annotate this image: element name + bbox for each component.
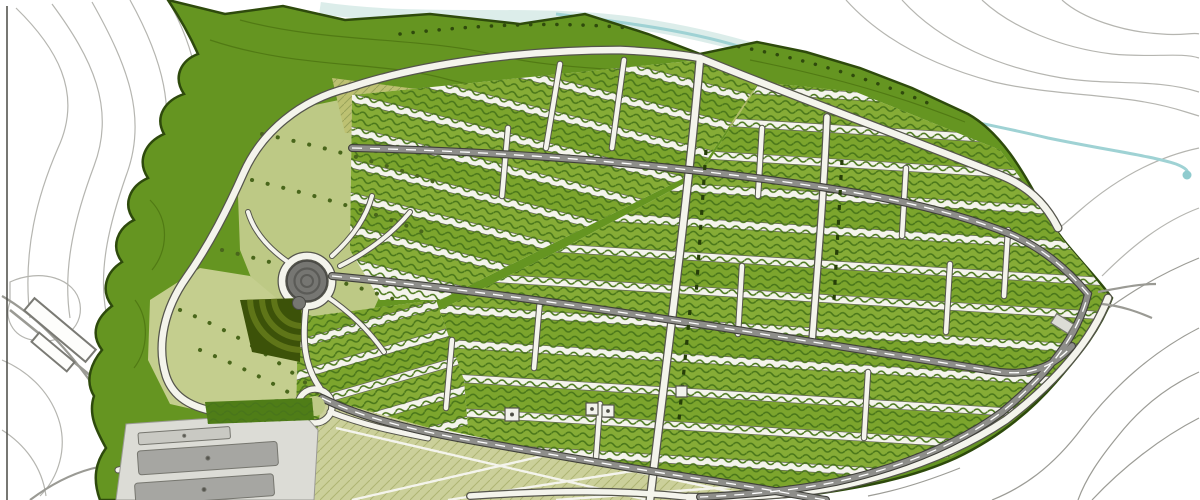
plaza-south-nub (293, 297, 306, 310)
site-plan-svg (0, 0, 1200, 500)
building-roof-dot (202, 487, 206, 491)
entrance-hedge-rows (205, 398, 314, 424)
pavilion-dot (511, 413, 514, 416)
building-roof-dot (206, 456, 210, 460)
plaza-disc (287, 261, 327, 301)
building-roof-dot (183, 434, 186, 437)
pavilion-dot (591, 408, 594, 411)
pavilion-dot (607, 410, 610, 413)
site-plan-drawing (0, 0, 1200, 500)
stream-end (1183, 171, 1192, 180)
pavilion (676, 386, 687, 397)
